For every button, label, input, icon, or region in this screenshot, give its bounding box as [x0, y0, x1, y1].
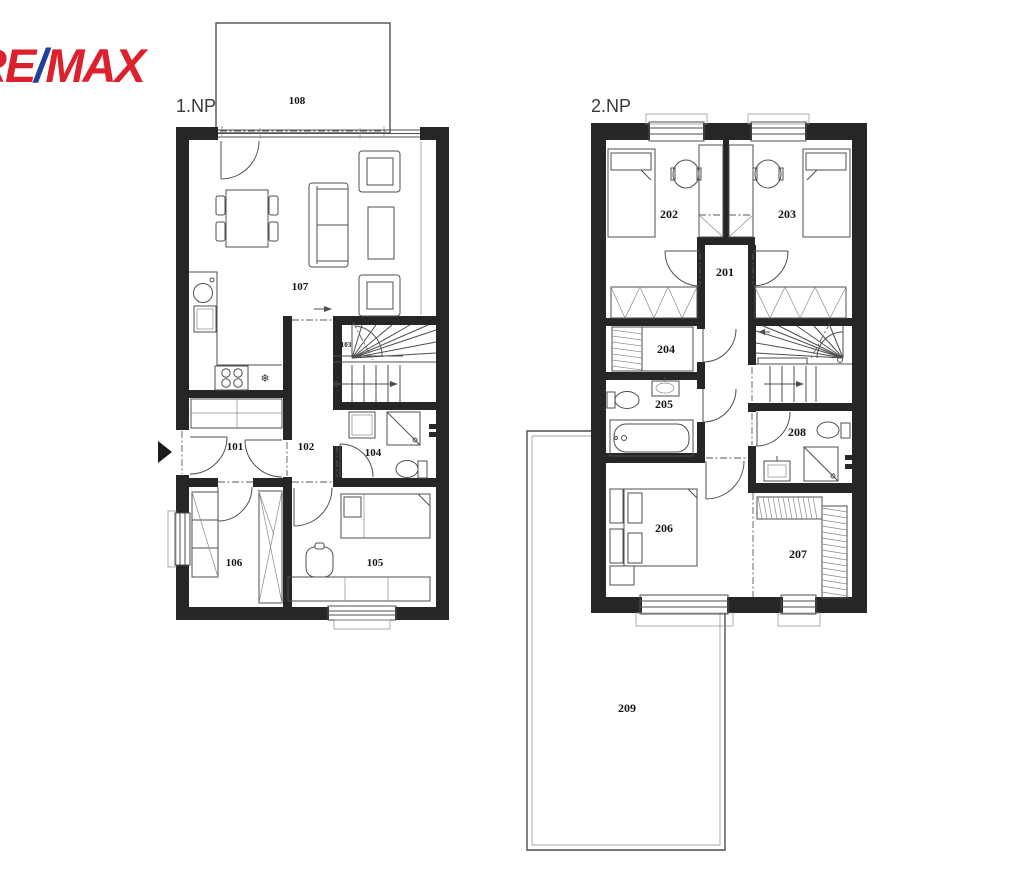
terrace-108 [216, 23, 390, 136]
bathroom-104 [349, 412, 436, 478]
floor1-windows [168, 128, 421, 629]
cabinet-106-right [259, 491, 282, 603]
room-label-206: 206 [655, 521, 673, 535]
toilet-104 [396, 461, 427, 479]
floor2-plan: 2.NP 201 202 203 204 205 206 207 208 209 [527, 96, 867, 850]
bed-203 [803, 149, 850, 237]
bed-105 [341, 494, 430, 538]
desk-105 [288, 577, 430, 601]
coffee-table [368, 207, 394, 259]
bed-202 [608, 149, 655, 237]
floorplan-page: RE/MAX [0, 0, 1024, 883]
stove [215, 366, 248, 390]
room-label-202: 202 [660, 207, 678, 221]
room-label-209: 209 [618, 701, 636, 715]
toilet-208 [817, 422, 850, 438]
armchair-bottom [359, 275, 400, 316]
room-label-107: 107 [292, 281, 309, 293]
room-106 [192, 489, 282, 603]
washing-machine [349, 412, 375, 438]
hall-101-closet [191, 399, 282, 428]
kitchen-sink [194, 284, 213, 303]
room-label-204: 204 [657, 342, 675, 356]
floor2-title: 2.NP [591, 96, 631, 116]
bedroom-105 [288, 494, 430, 601]
room-label-106: 106 [226, 557, 243, 569]
sofa [309, 183, 348, 267]
armchair-top [359, 151, 400, 192]
toilet-205 [607, 392, 639, 409]
room-label-104: 104 [365, 447, 382, 459]
kitchen: ❄ [189, 272, 282, 390]
floor1-plan: ❄ [158, 23, 449, 629]
floor1-title: 1.NP [176, 96, 216, 116]
stairs-floor1 [333, 322, 436, 402]
room-label-103: 103 [341, 341, 352, 349]
room-label-108: 108 [289, 95, 306, 107]
shower-104 [387, 412, 436, 445]
wardrobe-106-left [192, 492, 218, 577]
fridge-icon: ❄ [260, 372, 269, 385]
room-label-102: 102 [298, 441, 315, 453]
entry-arrow-icon [158, 441, 172, 463]
room-label-207: 207 [789, 547, 807, 561]
room-label-101: 101 [227, 441, 244, 453]
room-label-105: 105 [367, 557, 384, 569]
room-label-205: 205 [655, 397, 673, 411]
dining-set [216, 190, 278, 247]
chair-105 [306, 543, 333, 577]
room-label-203: 203 [778, 207, 796, 221]
floorplan-drawing: ❄ [0, 0, 1024, 883]
room-label-201: 201 [716, 265, 734, 279]
room-label-208: 208 [788, 425, 806, 439]
